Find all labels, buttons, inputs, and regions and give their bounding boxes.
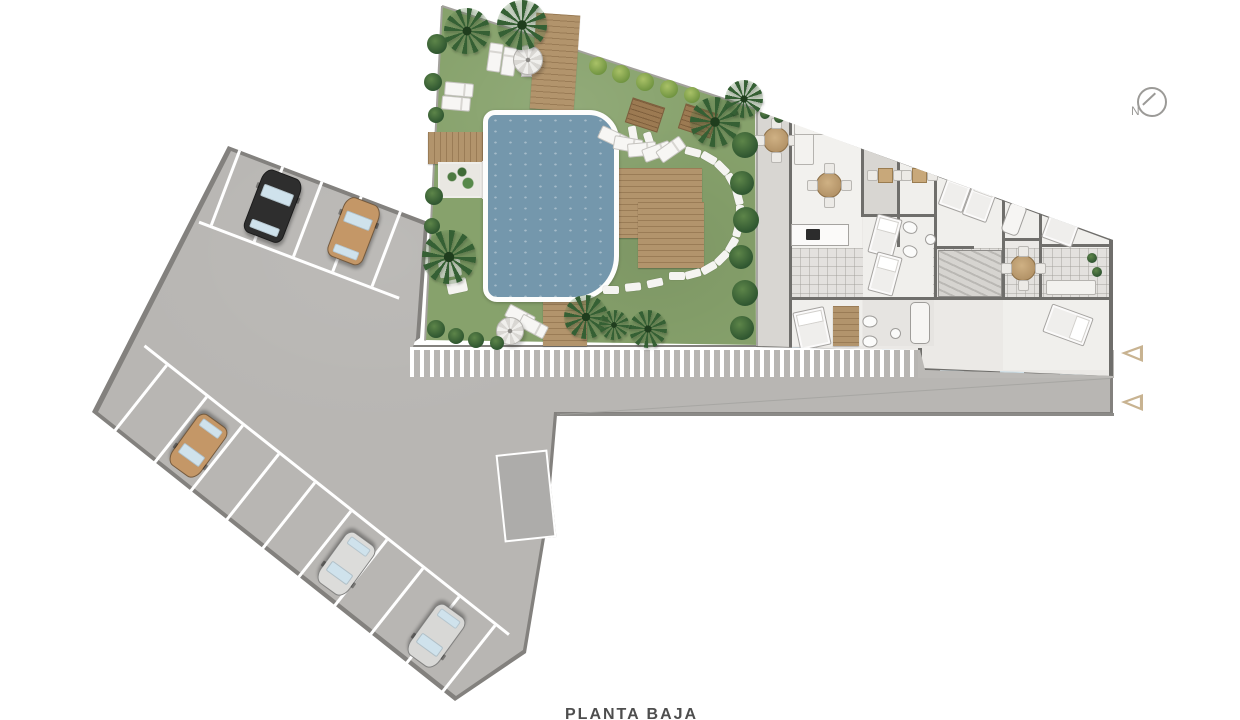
- chair: [1018, 280, 1029, 291]
- bush-icon: [636, 73, 654, 91]
- road-edge: [557, 413, 1114, 416]
- bush-icon: [424, 218, 440, 234]
- chair: [901, 170, 912, 181]
- toilet: [1008, 186, 1024, 204]
- bush-icon: [427, 320, 445, 338]
- blanket: [1045, 212, 1078, 244]
- building: [755, 106, 1117, 382]
- rear-window: [249, 218, 280, 237]
- bistro-table: [912, 168, 927, 183]
- bush-icon: [448, 328, 464, 344]
- sink: [925, 234, 936, 245]
- crosswalk: [410, 347, 918, 377]
- palm-tree-icon: [422, 230, 476, 284]
- cooktop: [806, 229, 820, 240]
- site-plan: PLANTA BAJA N: [0, 0, 1240, 720]
- caption: PLANTA BAJA: [565, 706, 698, 720]
- bush-icon: [424, 73, 442, 91]
- wood-deck: [638, 202, 704, 268]
- wall: [1002, 238, 1041, 241]
- wood-bar: [1041, 192, 1083, 214]
- plant-icon: [760, 109, 770, 119]
- kitchen-counter: [791, 224, 849, 246]
- chair: [771, 152, 782, 163]
- chair: [807, 180, 818, 191]
- wall: [934, 141, 937, 300]
- wall: [1039, 244, 1112, 247]
- parking-ramp: [496, 450, 557, 543]
- windshield: [343, 210, 374, 232]
- bush-icon: [490, 336, 504, 350]
- bistro-table: [878, 168, 893, 183]
- rear-window: [332, 243, 359, 261]
- windshield: [326, 560, 354, 585]
- chair: [927, 170, 938, 181]
- stepping-stone: [603, 286, 619, 294]
- palm-tree-icon: [497, 0, 547, 50]
- wall: [861, 119, 864, 216]
- sofa: [794, 117, 832, 135]
- toilet: [863, 336, 878, 348]
- wood-bar: [833, 306, 859, 346]
- palm-tree-icon: [444, 8, 490, 54]
- sink: [890, 328, 901, 339]
- chair: [1035, 263, 1046, 274]
- bush-icon: [730, 171, 754, 195]
- bush-icon: [660, 80, 678, 98]
- bush-icon: [468, 332, 484, 348]
- bush-icon: [730, 316, 754, 340]
- dining-table: [816, 172, 842, 198]
- plant-icon: [833, 102, 843, 112]
- palm-tree-icon: [599, 310, 629, 340]
- side-mirror: [338, 208, 343, 215]
- toilet: [863, 316, 878, 328]
- plant-icon: [774, 113, 784, 123]
- plant-icon: [1019, 166, 1029, 176]
- bush-icon: [733, 207, 759, 233]
- planter: [438, 162, 482, 198]
- bush-icon: [732, 280, 758, 306]
- north-indicator: [1137, 87, 1167, 117]
- bush-icon: [425, 187, 443, 205]
- wall: [861, 214, 936, 217]
- sofa: [1046, 280, 1096, 295]
- bush-icon: [428, 107, 444, 123]
- bush-icon: [732, 132, 758, 158]
- wood-bar: [926, 140, 988, 173]
- plant-icon: [925, 132, 935, 142]
- chair: [824, 197, 835, 208]
- sink: [1026, 180, 1037, 191]
- windshield: [178, 442, 206, 467]
- chair: [1001, 263, 1012, 274]
- bathtub: [910, 302, 930, 344]
- plant-icon: [861, 126, 871, 136]
- bush-icon: [684, 87, 700, 103]
- wood-bar: [1030, 178, 1092, 211]
- bush-icon: [427, 34, 447, 54]
- wall: [934, 246, 974, 249]
- stairs: [938, 250, 1002, 297]
- kitchen-counter: [1004, 180, 1040, 194]
- dining-table: [763, 127, 789, 153]
- bush-icon: [612, 65, 630, 83]
- sofa: [794, 117, 814, 165]
- chair: [824, 163, 835, 174]
- chair: [841, 180, 852, 191]
- stepping-stone: [669, 272, 685, 280]
- sun-lounger: [441, 95, 471, 111]
- wall: [789, 297, 1113, 300]
- chair: [1018, 246, 1029, 257]
- plant-icon: [1087, 253, 1097, 263]
- pillow: [1054, 198, 1083, 220]
- bush-icon: [729, 245, 753, 269]
- side-mirror: [256, 182, 261, 189]
- sink: [1030, 183, 1041, 194]
- windshield: [260, 183, 295, 207]
- windshield: [416, 632, 444, 657]
- chair: [867, 170, 878, 181]
- dining-table: [1010, 255, 1036, 281]
- palm-tree-icon: [629, 310, 667, 348]
- palm-tree-icon: [725, 80, 763, 118]
- plant-icon: [1092, 267, 1102, 277]
- bush-icon: [589, 57, 607, 75]
- plant-icon: [885, 143, 895, 153]
- stepping-stone: [625, 282, 642, 292]
